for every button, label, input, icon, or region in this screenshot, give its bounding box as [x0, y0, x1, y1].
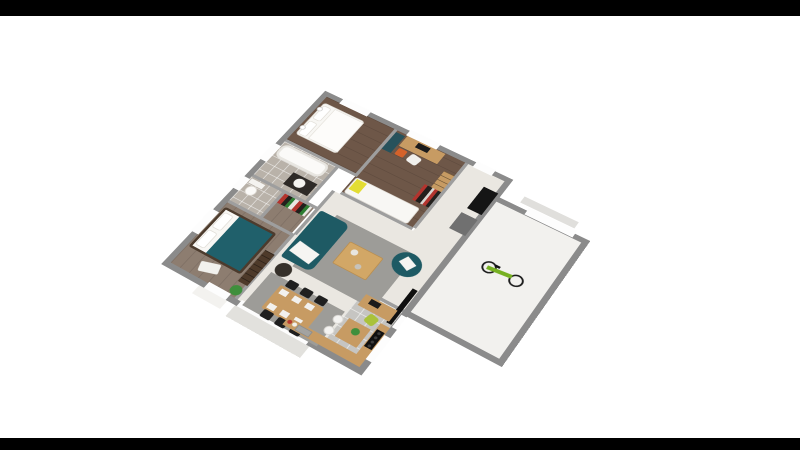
letterbox-bottom — [0, 438, 800, 450]
floor-plan — [161, 91, 603, 430]
floor-plan-scene — [205, 93, 565, 393]
screenshot-canvas — [0, 0, 800, 450]
letterbox-top — [0, 0, 800, 16]
